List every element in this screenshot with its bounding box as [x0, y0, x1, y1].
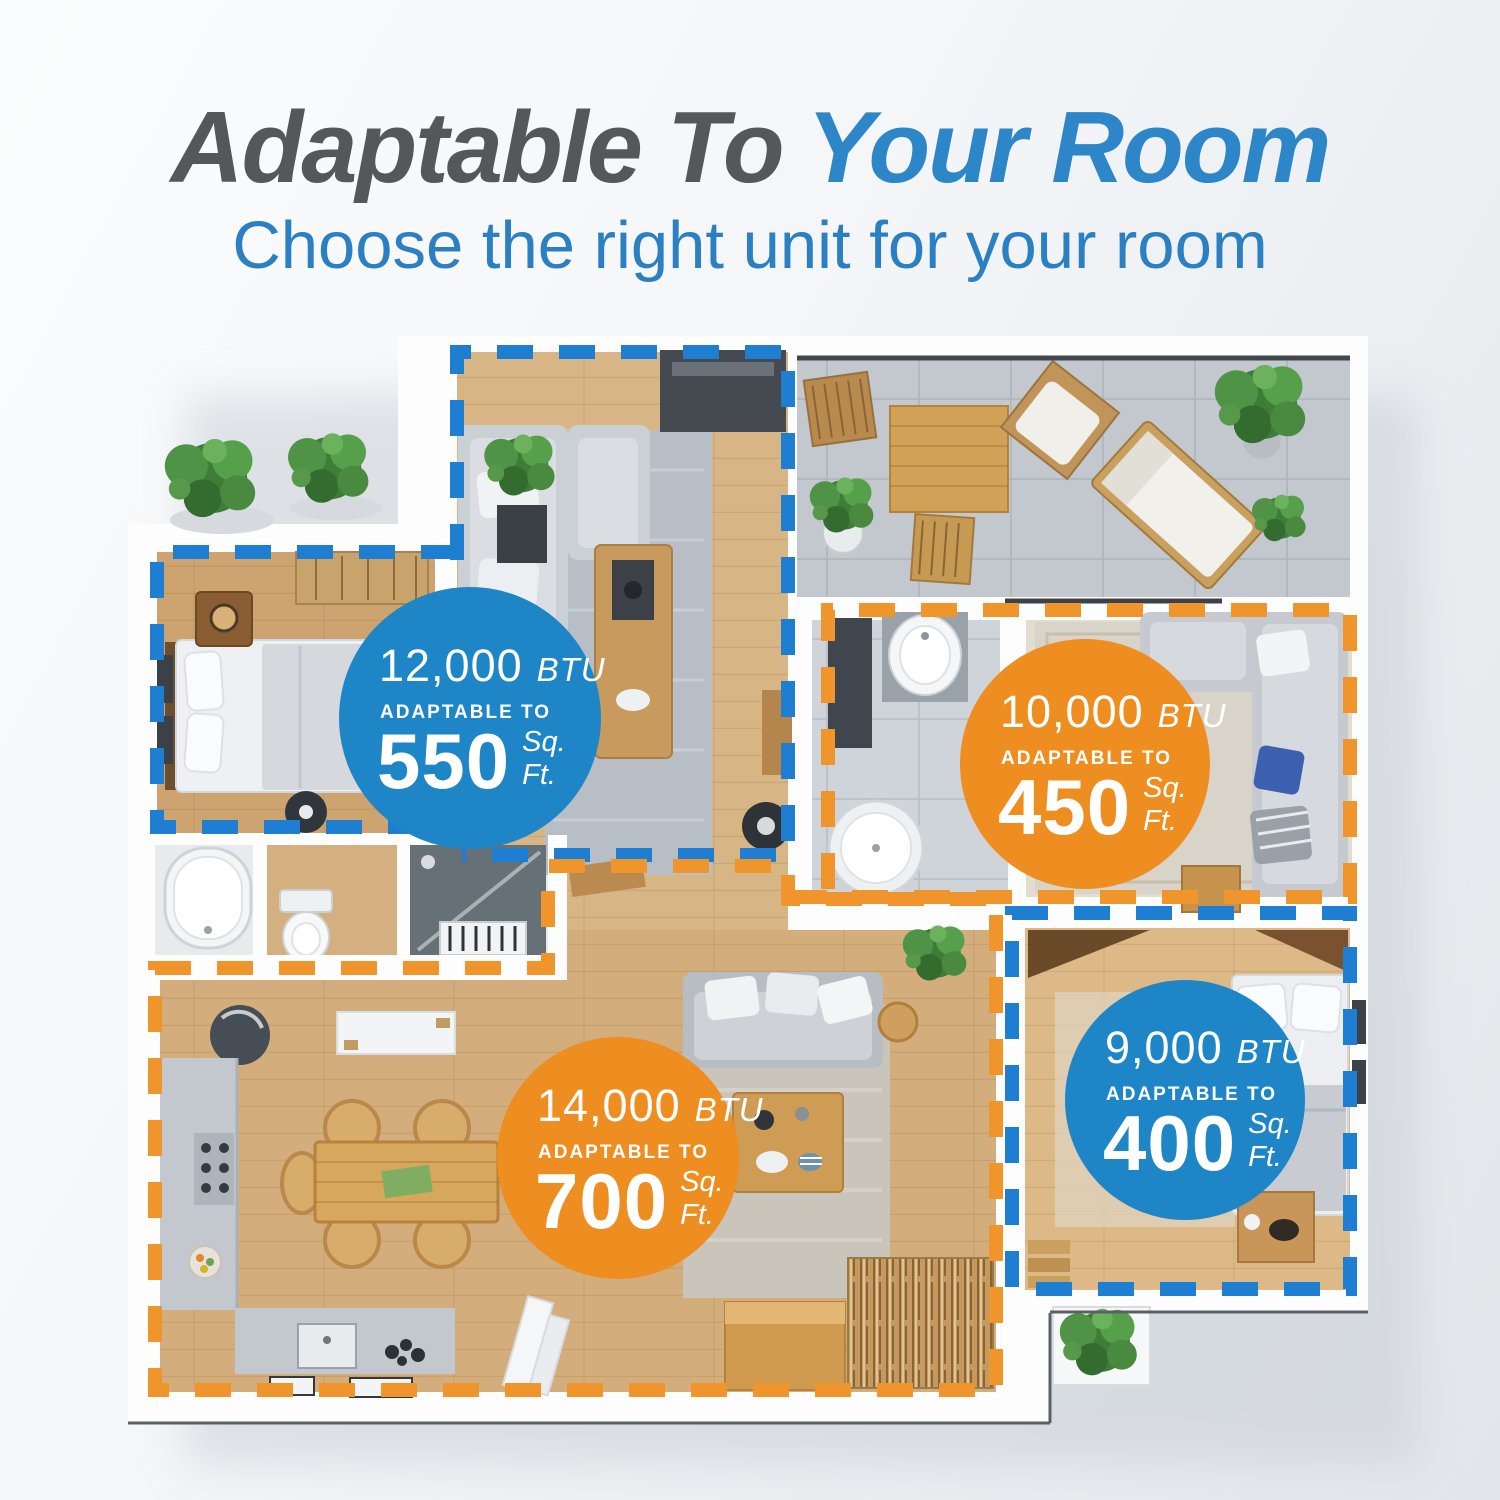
sqft-unit: Sq. Ft.: [680, 1166, 739, 1232]
nightstand: [196, 592, 252, 646]
title-accent-text: Your Room: [807, 92, 1330, 204]
badge-14000-btu: 14,000BTU ADAPTABLE TO 700Sq. Ft.: [497, 1037, 739, 1279]
side-table: [1182, 866, 1240, 912]
sqft-unit: Sq. Ft.: [1248, 1108, 1305, 1174]
btu-unit: BTU: [537, 651, 606, 689]
btu-unit: BTU: [1158, 697, 1227, 735]
wood-bench: [725, 1302, 845, 1390]
page-root: Adaptable To Your Room Choose the right …: [0, 0, 1500, 1500]
btu-value: 9,000: [1105, 1022, 1223, 1074]
dining-table: [315, 1142, 498, 1222]
sqft-value: 450: [998, 772, 1131, 842]
sqft-value: 400: [1103, 1108, 1236, 1178]
dried-grass-planter: [848, 1258, 993, 1388]
btu-value: 10,000: [1000, 686, 1144, 738]
blue-pillow: [1253, 744, 1306, 795]
badge-9000-btu: 9,000BTU ADAPTABLE TO 400Sq. Ft.: [1065, 980, 1305, 1220]
plant-icon: [165, 439, 255, 517]
header: Adaptable To Your Room Choose the right …: [0, 0, 1500, 281]
terrace-stool: [911, 514, 974, 584]
sqft-unit: Sq. Ft.: [1143, 772, 1210, 838]
fruit-bowl: [189, 1246, 221, 1278]
plant-pot: [497, 505, 547, 563]
round-vanity: [210, 1005, 270, 1065]
desk: [1238, 1192, 1314, 1262]
page-title: Adaptable To Your Room: [0, 96, 1500, 201]
btu-unit: BTU: [695, 1091, 764, 1129]
title-dark-text: Adaptable To: [171, 92, 807, 204]
stool: [879, 1003, 917, 1041]
sqft-value: 550: [377, 726, 510, 796]
btu-value: 12,000: [379, 640, 523, 692]
page-subtitle: Choose the right unit for your room: [0, 211, 1500, 281]
badge-12000-btu: 12,000BTU ADAPTABLE TO 550Sq. Ft.: [339, 587, 601, 849]
badge-10000-btu: 10,000BTU ADAPTABLE TO 450Sq. Ft.: [960, 639, 1210, 889]
btu-unit: BTU: [1237, 1033, 1306, 1071]
sofa: [683, 972, 883, 1068]
sqft-unit: Sq. Ft.: [522, 726, 601, 792]
coffee-table: [595, 545, 672, 758]
sink: [298, 1324, 356, 1368]
toilet: [280, 890, 332, 962]
terrace-chair: [804, 372, 877, 446]
btu-value: 14,000: [537, 1080, 681, 1132]
terrace-table: [890, 406, 1008, 512]
sqft-value: 700: [535, 1166, 668, 1236]
wood-steps: [1028, 1240, 1070, 1288]
